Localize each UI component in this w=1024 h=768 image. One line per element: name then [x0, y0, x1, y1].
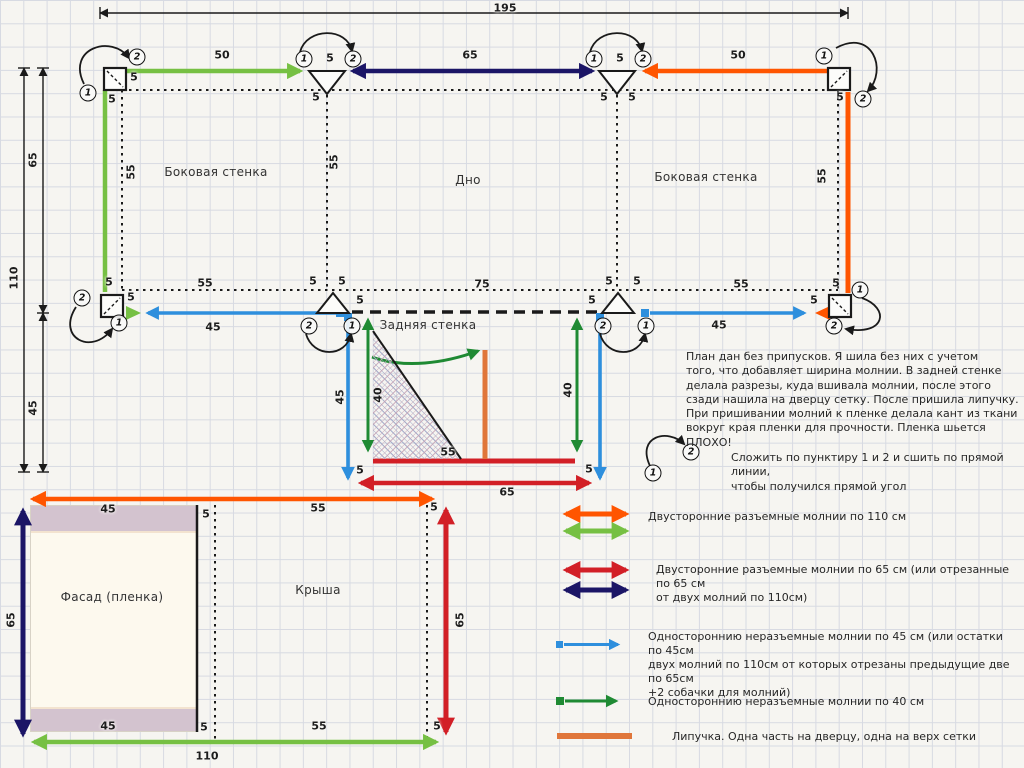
sewing-pattern-diagram: 1955056555055555565110455555555555575555…	[0, 0, 1024, 768]
legend-item-110: Двусторонние разъемные молнии по 110 см	[648, 510, 1016, 524]
fold-note: Сложить по пунктиру 1 и 2 и сшить по пря…	[731, 451, 1024, 494]
fold-point-2: 2	[74, 290, 91, 307]
dim-label: 5	[616, 52, 624, 65]
fold-point-2: 2	[595, 318, 612, 335]
panel-label: Боковая стенка	[164, 165, 267, 179]
dim-label: 45	[334, 389, 347, 404]
dim-label: 55	[310, 502, 325, 515]
dim-label: 55	[816, 168, 829, 183]
legend-item-45: Одностороннию неразъемные молнии по 45 с…	[648, 630, 1020, 700]
dim-label: 55	[311, 720, 326, 733]
dim-label: 65	[5, 612, 18, 627]
dim-label: 5	[127, 291, 135, 304]
dim-label: 5	[312, 91, 320, 104]
dim-label: 5	[633, 275, 641, 288]
dim-label: 5	[309, 275, 317, 288]
dim-label: 50	[730, 49, 745, 62]
dim-label: 65	[27, 152, 40, 167]
dim-label: 5	[356, 294, 364, 307]
dim-label: 55	[197, 277, 212, 290]
fold-point-2: 2	[635, 51, 652, 68]
fold-point-1: 1	[80, 85, 97, 102]
dim-label: 55	[328, 154, 341, 169]
dim-label: 55	[733, 278, 748, 291]
fold-point-1: 1	[638, 318, 655, 335]
panel-label: Дно	[455, 173, 480, 187]
fold-point-1: 1	[586, 51, 603, 68]
dim-label: 45	[100, 503, 115, 516]
dim-label: 110	[196, 750, 219, 763]
dim-label: 5	[202, 508, 210, 521]
dim-label: 50	[214, 49, 229, 62]
fold-point-2: 2	[855, 91, 872, 108]
dim-label: 5	[130, 71, 138, 84]
fold-point-1: 1	[111, 315, 128, 332]
dim-label: 5	[600, 91, 608, 104]
legend-item-65: Двусторонние разъемные молнии по 65 см (…	[656, 563, 1024, 605]
dim-label: 45	[27, 400, 40, 415]
dim-label: 5	[105, 276, 113, 289]
dim-label: 65	[462, 49, 477, 62]
dim-label: 5	[832, 277, 840, 290]
dim-label: 5	[108, 93, 116, 106]
dim-label: 75	[474, 278, 489, 291]
dim-label: 5	[836, 91, 844, 104]
dim-label: 40	[372, 387, 385, 402]
dim-label: 5	[628, 91, 636, 104]
dim-label: 45	[711, 319, 726, 332]
main-note: План дан без припусков. Я шила без них с…	[686, 350, 1024, 450]
dim-label: 5	[356, 464, 364, 477]
fold-point-1: 1	[816, 48, 833, 65]
panel-label: Задняя стенка	[380, 318, 477, 332]
dim-label: 45	[100, 720, 115, 733]
legend-item-40: Одностороннию неразъемные молнии по 40 с…	[648, 695, 988, 709]
fold-point-1: 1	[645, 465, 662, 482]
fold-point-1: 1	[296, 51, 313, 68]
dim-label: 65	[454, 612, 467, 627]
dim-label: 65	[499, 486, 514, 499]
panel-label: Фасад (пленка)	[61, 590, 164, 604]
dim-label: 5	[810, 294, 818, 307]
fold-point-2: 2	[345, 51, 362, 68]
fold-point-2: 2	[301, 318, 318, 335]
dim-label: 110	[8, 267, 21, 290]
dim-label: 5	[326, 52, 334, 65]
dim-label: 55	[125, 164, 138, 179]
fold-point-1: 1	[852, 282, 869, 299]
dim-label: 5	[430, 501, 438, 514]
dim-label: 5	[585, 463, 593, 476]
fold-point-1: 1	[344, 318, 361, 335]
dim-label: 195	[494, 2, 517, 15]
dim-label: 5	[605, 275, 613, 288]
dim-label: 5	[433, 720, 441, 733]
panel-label: Крыша	[295, 583, 340, 597]
dim-label: 5	[588, 294, 596, 307]
dim-label: 40	[562, 382, 575, 397]
dim-label: 55	[440, 446, 455, 459]
dim-label: 5	[200, 721, 208, 734]
dim-label: 5	[338, 275, 346, 288]
fold-point-2: 2	[826, 318, 843, 335]
fold-point-2: 2	[129, 49, 146, 66]
dim-label: 45	[205, 321, 220, 334]
legend-item-velcro: Липучка. Одна часть на дверцу, одна на в…	[672, 730, 1016, 744]
panel-label: Боковая стенка	[654, 170, 757, 184]
